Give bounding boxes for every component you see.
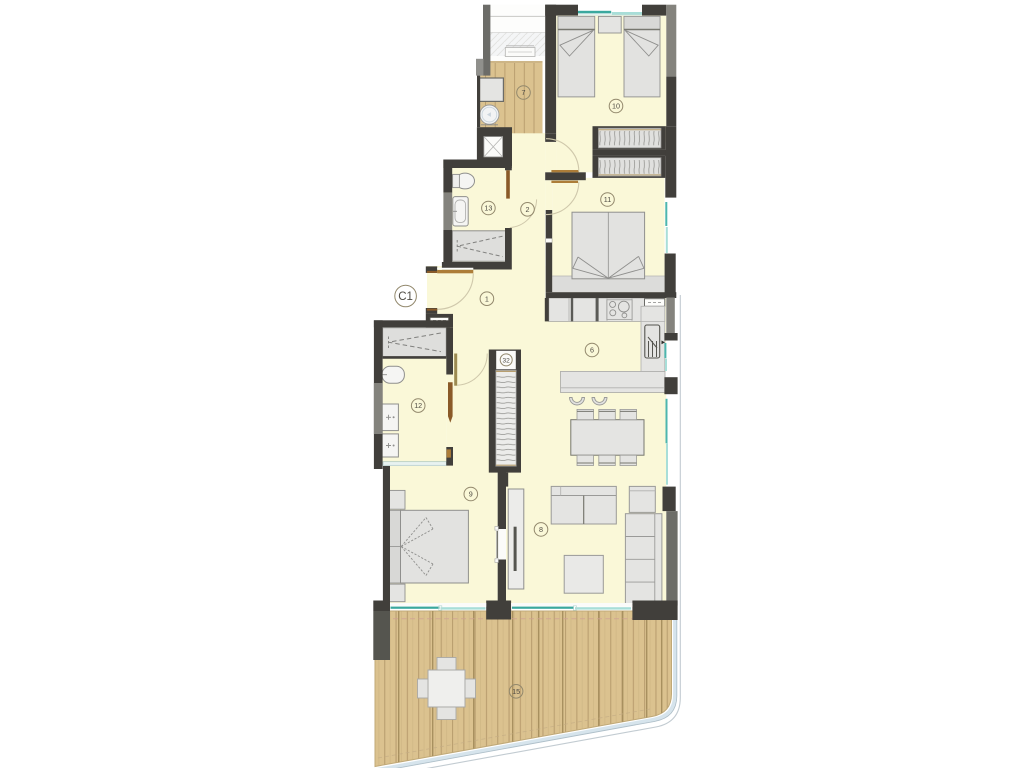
- svg-text:13: 13: [484, 204, 492, 213]
- svg-text:2: 2: [526, 205, 530, 214]
- svg-text:1: 1: [485, 294, 489, 303]
- svg-text:8: 8: [539, 525, 543, 534]
- svg-text:15: 15: [512, 687, 520, 696]
- svg-text:7: 7: [522, 88, 526, 97]
- svg-text:9: 9: [469, 490, 473, 499]
- svg-text:12: 12: [414, 401, 422, 410]
- svg-text:11: 11: [604, 195, 611, 204]
- svg-text:32: 32: [503, 357, 511, 364]
- svg-text:6: 6: [590, 346, 594, 355]
- svg-text:10: 10: [612, 102, 620, 111]
- svg-text:C1: C1: [398, 291, 413, 303]
